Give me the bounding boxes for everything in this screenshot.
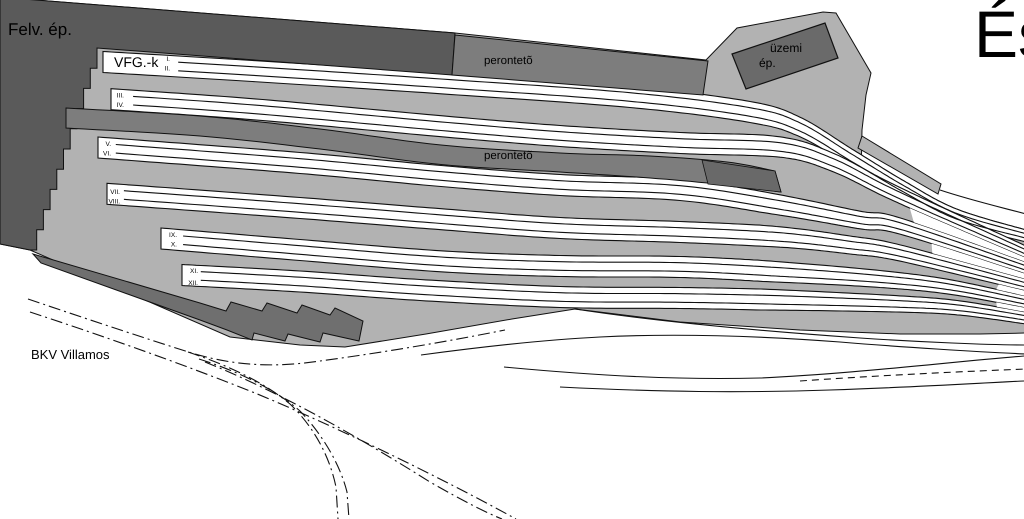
svg-text:XII.: XII. [188, 280, 198, 287]
svg-text:XI.: XI. [190, 268, 198, 275]
svg-text:perontetõ: perontetõ [484, 55, 533, 67]
svg-text:V.: V. [105, 141, 111, 148]
svg-text:Felv. ép.: Felv. ép. [8, 20, 72, 39]
svg-text:I.: I. [166, 56, 170, 63]
svg-text:IV.: IV. [117, 102, 125, 109]
svg-text:II.: II. [165, 66, 171, 73]
svg-text:IX.: IX. [169, 232, 177, 239]
svg-text:üzemi: üzemi [770, 41, 802, 55]
svg-text:perontetõ: perontetõ [484, 150, 533, 162]
svg-text:VFG.-k: VFG.-k [114, 54, 159, 70]
svg-text:ép.: ép. [759, 56, 776, 70]
svg-text:III.: III. [117, 93, 124, 100]
svg-text:VIII.: VIII. [108, 199, 120, 206]
svg-text:VII.: VII. [110, 189, 120, 196]
svg-text:X.: X. [171, 242, 177, 249]
svg-text:VI.: VI. [103, 151, 111, 158]
svg-text:És: És [974, 0, 1024, 71]
svg-text:BKV Villamos: BKV Villamos [31, 347, 110, 362]
